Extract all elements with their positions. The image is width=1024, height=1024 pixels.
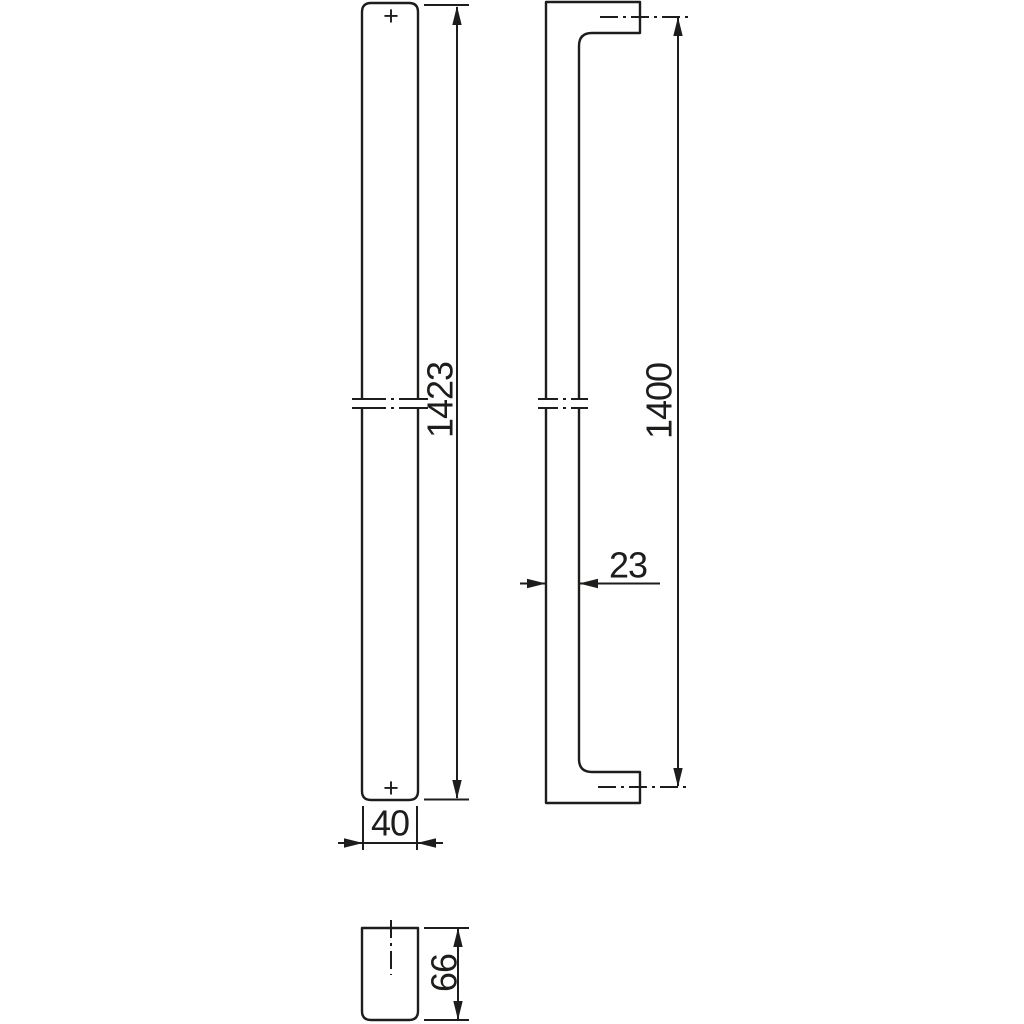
dim-23-arrow-left-icon <box>579 579 598 588</box>
front-view: + + <box>352 1 428 803</box>
side-view-dimensions: 1400 23 <box>520 17 683 787</box>
handle-technical-drawing: + + 1423 40 <box>0 0 1024 1024</box>
dim-40-arrow-left-icon <box>417 838 436 847</box>
dim-label-hole-spacing: 1400 <box>639 363 680 439</box>
plus-mark-icon: + <box>383 773 399 803</box>
front-bar-lower-outline <box>362 408 418 800</box>
plus-mark-icon: + <box>383 1 399 31</box>
dim-1400-arrow-up-icon <box>673 17 682 36</box>
dim-1400-arrow-down-icon <box>673 768 682 787</box>
dim-label-projection: 66 <box>424 954 465 992</box>
dim-label-bar-width: 40 <box>371 803 409 844</box>
dim-66-arrow-up-icon <box>453 928 462 947</box>
dim-1423-arrow-up-icon <box>452 6 461 25</box>
dim-1423-arrow-down-icon <box>452 780 461 799</box>
top-view-dimensions: 66 <box>424 928 470 1020</box>
dim-23-arrow-right-icon <box>527 579 546 588</box>
side-profile-lower-outline <box>546 408 640 803</box>
side-profile-upper-outline <box>546 2 640 399</box>
front-view-dimensions: 1423 40 <box>338 5 469 850</box>
top-view <box>362 920 418 1020</box>
dim-66-arrow-down-icon <box>453 1001 462 1020</box>
technical-drawing-page: + + 1423 40 <box>0 0 1024 1024</box>
dim-label-grip-depth: 23 <box>609 545 647 586</box>
dim-label-overall-length: 1423 <box>420 362 461 438</box>
front-bar-upper-outline <box>362 3 418 399</box>
dim-40-arrow-right-icon <box>344 838 363 847</box>
